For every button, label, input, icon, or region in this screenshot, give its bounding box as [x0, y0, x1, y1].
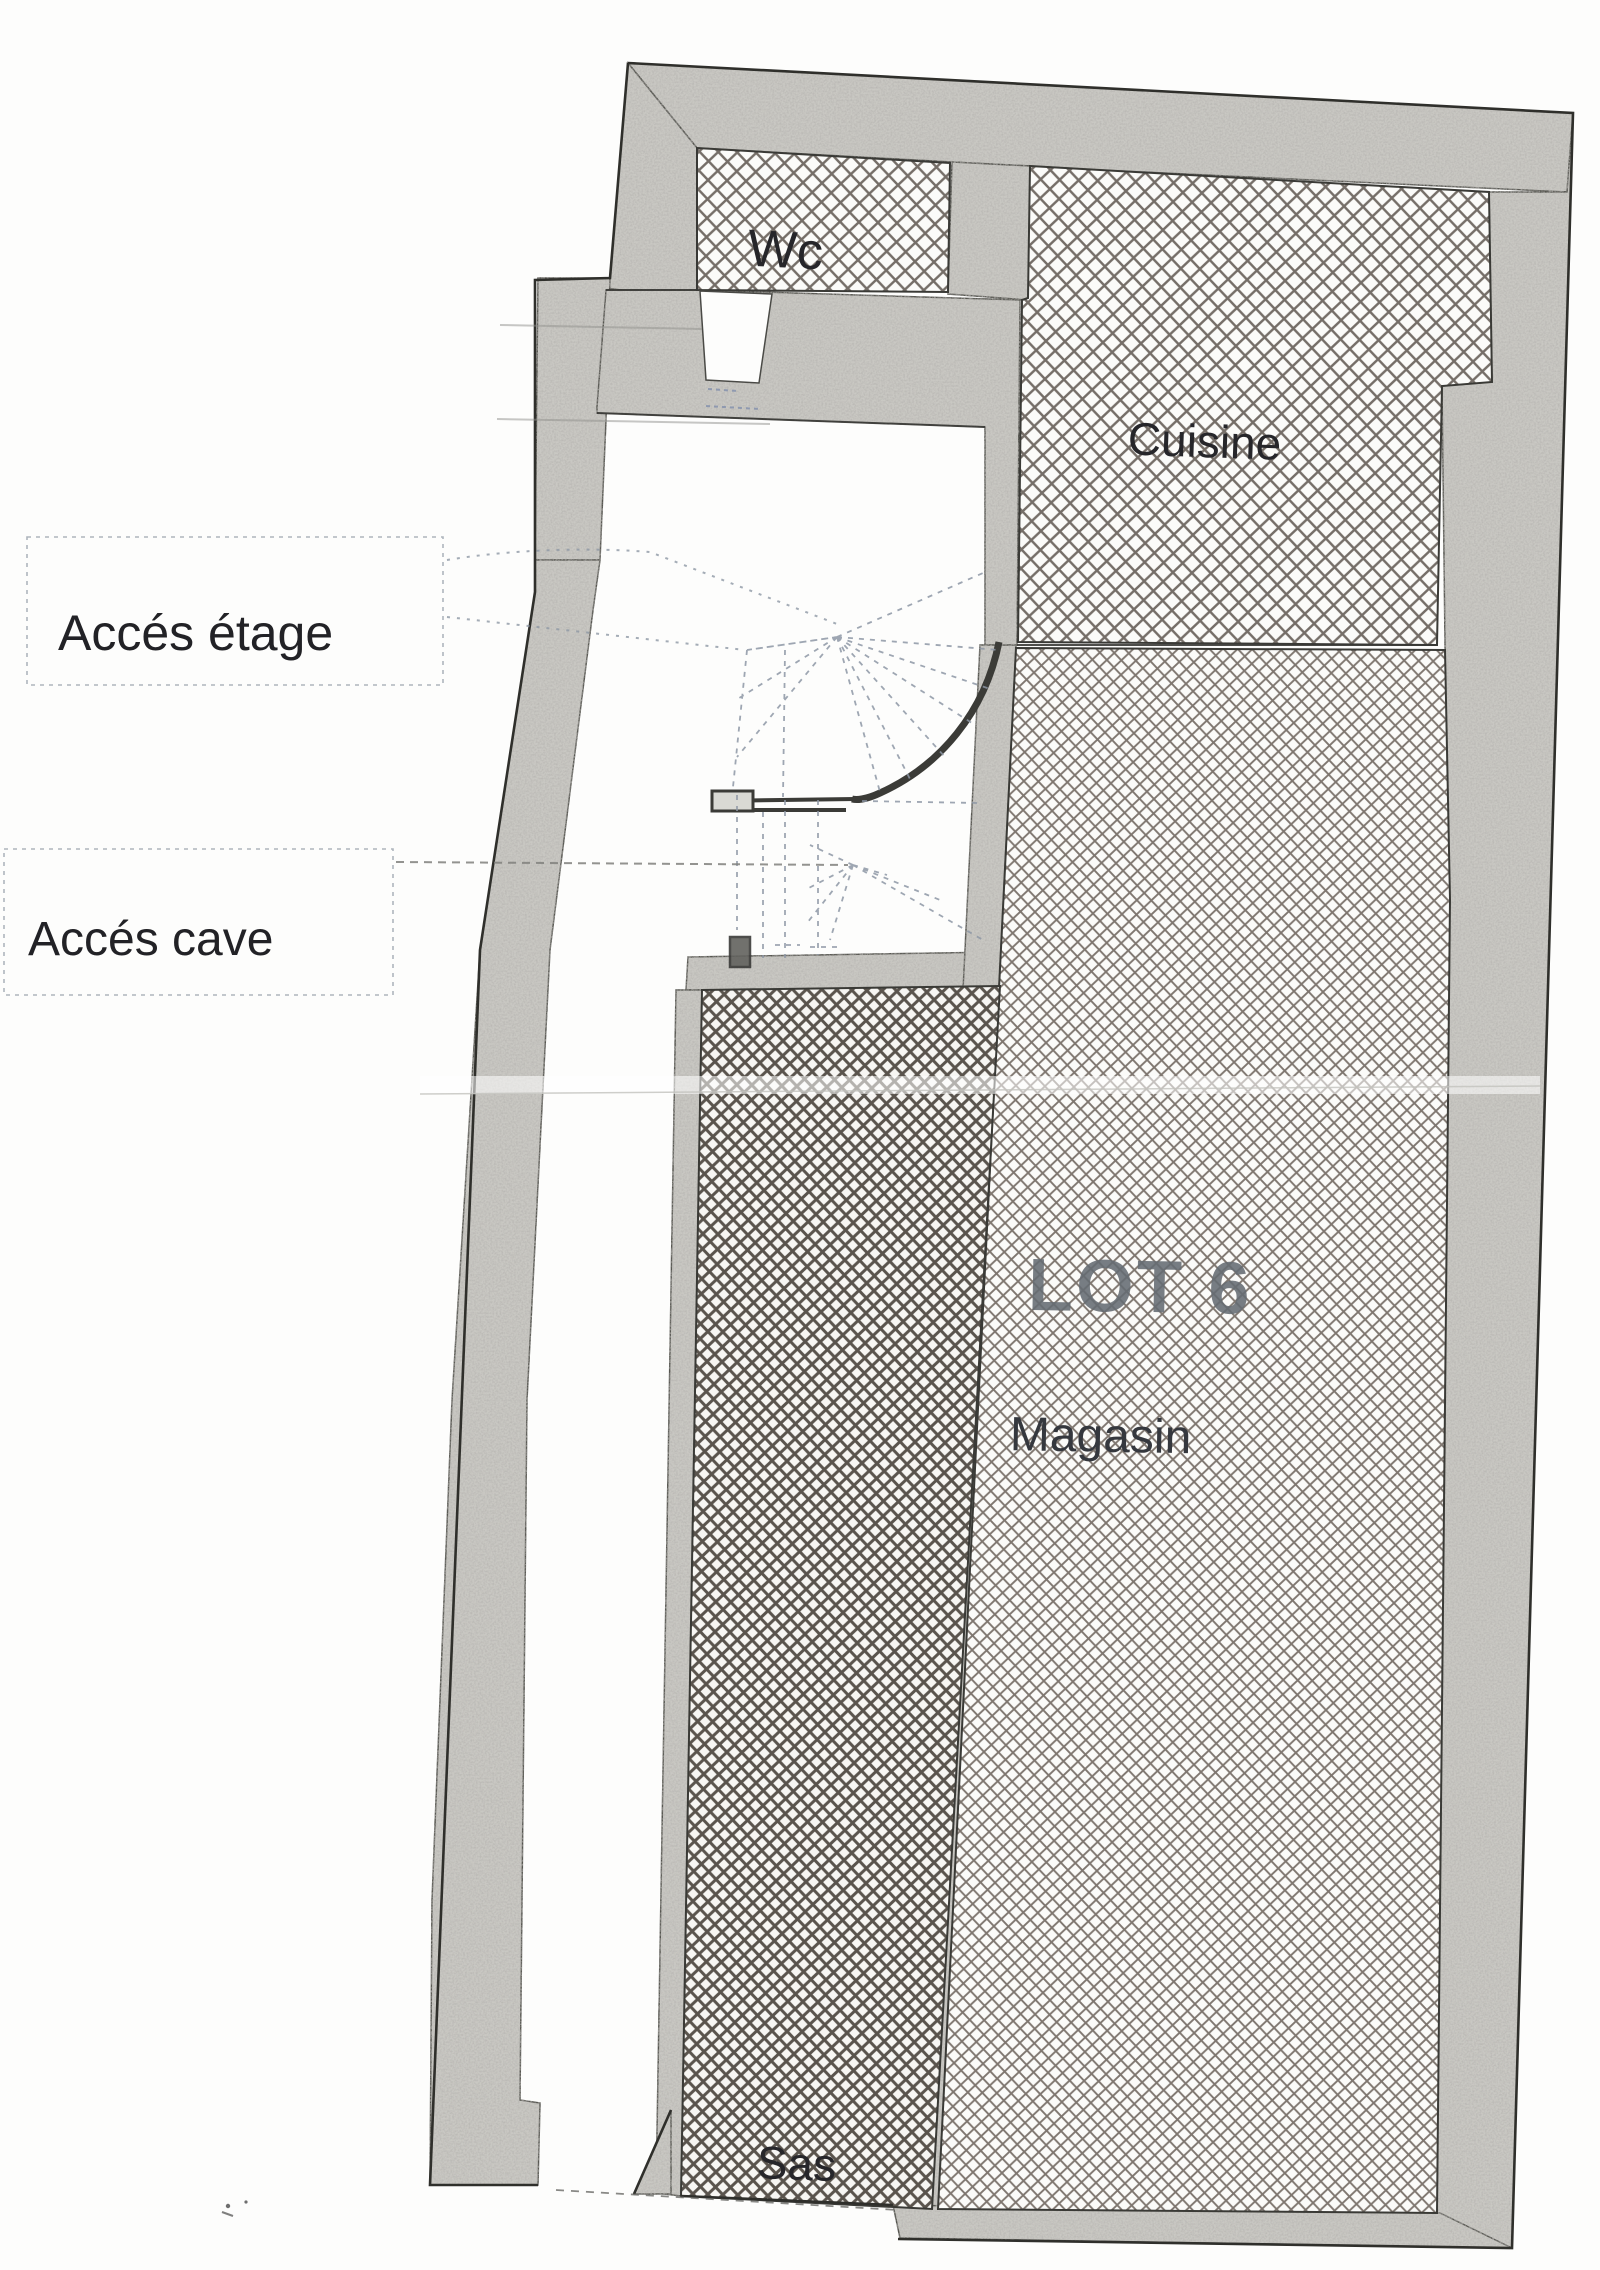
room-cuisine-hatch	[1018, 166, 1492, 645]
room-label-cuisine: Cuisine	[1127, 412, 1282, 469]
room-label-magasin: Magasin	[1009, 1408, 1191, 1464]
room-wc-hatch	[697, 148, 950, 292]
scanned-floor-plan-page: Wc Cuisine Accés étage Accés cave LOT 6 …	[0, 0, 1600, 2270]
door-wc-opening	[700, 291, 772, 383]
room-label-wc: Wc	[746, 220, 824, 282]
annotation-label-acces-etage: Accés étage	[58, 605, 333, 661]
annotation-label-acces-cave: Accés cave	[28, 913, 273, 966]
stair-newel-block	[712, 791, 753, 811]
wall-wc-cuisine-divider	[948, 162, 1030, 300]
stair-bottom-step-block	[730, 937, 750, 967]
ink-speck-1	[226, 2204, 230, 2208]
crease-middle-band	[420, 1076, 1540, 1094]
lot-label: LOT 6	[1027, 1243, 1253, 1330]
floor-plan-drawing: Wc Cuisine Accés étage Accés cave LOT 6 …	[0, 0, 1600, 2270]
room-label-sas: Sas	[756, 2136, 837, 2191]
ink-speck-2	[244, 2200, 247, 2203]
